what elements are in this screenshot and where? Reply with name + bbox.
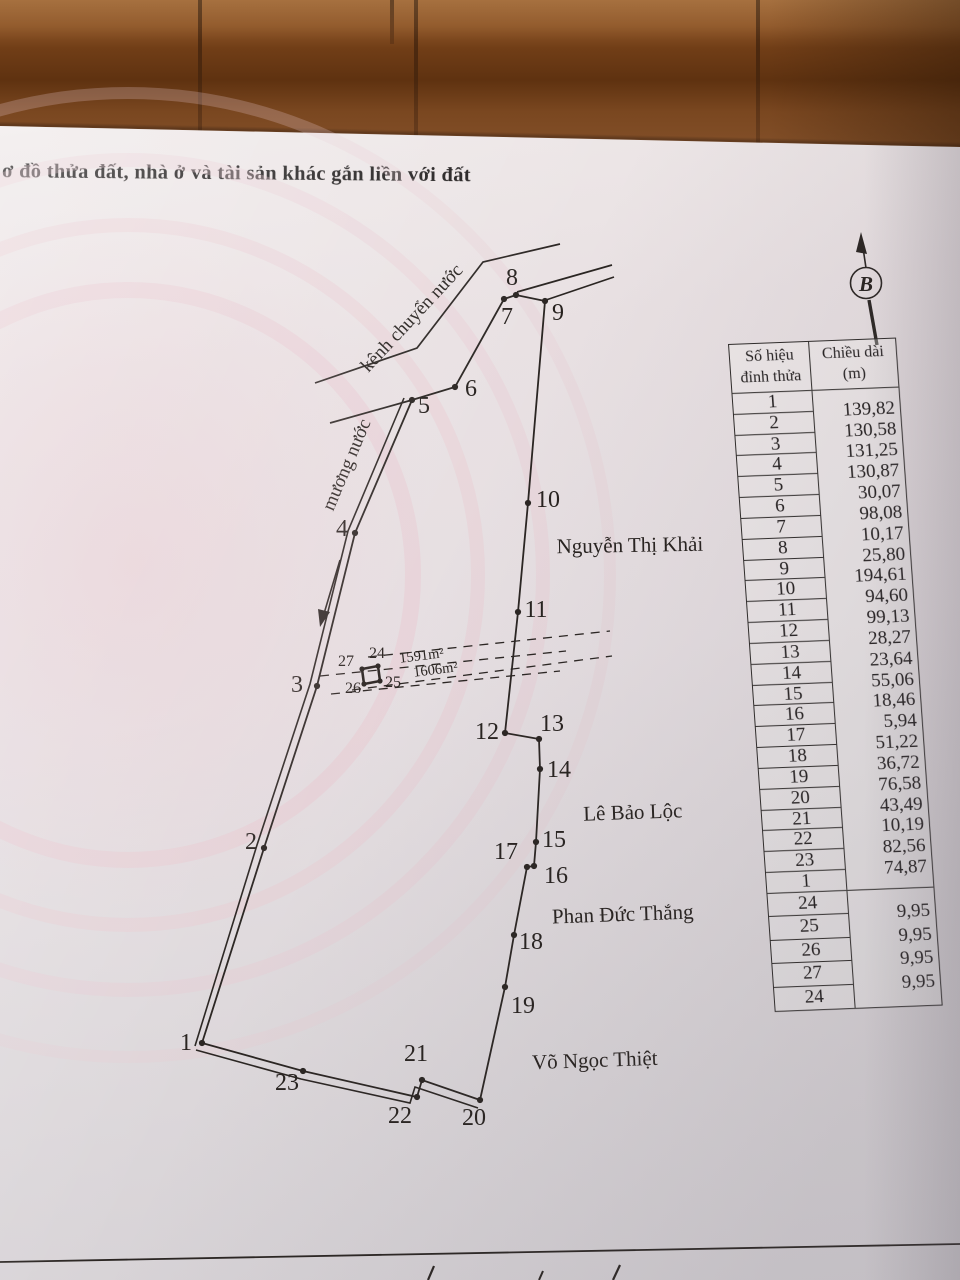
table-header-vertex-col: Số hiệu đỉnh thửa [729, 342, 812, 393]
vertex-dot-5 [409, 397, 415, 403]
vertex-dot-9 [542, 298, 548, 304]
vertex-dot-2 [261, 845, 267, 851]
vertex-dot-1 [199, 1040, 205, 1046]
north-symbol: B [858, 272, 873, 296]
length-value: 9,95 [896, 900, 931, 923]
neighbor-label-south1: Phan Đức Thắng [552, 900, 695, 929]
length-value-column: 9,959,959,959,95 [847, 888, 941, 1008]
page-rule [0, 1244, 960, 1262]
neighbor-label-mid: Lê Bảo Lộc [583, 798, 683, 825]
vertex-label-23: 23 [275, 1070, 299, 1096]
vertex-label-9: 9 [552, 300, 564, 326]
inner-vertex-dot [375, 663, 380, 668]
pen-mark-2 [539, 1271, 543, 1280]
vertex-label-5: 5 [418, 393, 430, 419]
vertex-number-column: 2425262724 [767, 891, 855, 1011]
vertex-dot-10 [525, 500, 531, 506]
vertex-dot-16 [531, 863, 537, 869]
vertex-dot-21 [419, 1077, 425, 1083]
flow-arrow-line [323, 560, 340, 617]
table-section-inner-parcel: 2425262724 9,959,959,959,95 [767, 888, 941, 1011]
ditch-label: mương nước [318, 416, 375, 514]
pen-mark-1 [428, 1266, 434, 1280]
vertex-dot-11 [515, 609, 521, 615]
vertex-dot-18 [511, 932, 517, 938]
vertex-number-cell: 26 [771, 938, 852, 964]
vertex-label-8: 8 [506, 265, 518, 291]
vertex-dot-19 [502, 984, 508, 990]
vertex-label-13: 13 [540, 711, 564, 737]
vertex-number-cell: 24 [767, 891, 848, 917]
vertex-label-12: 12 [475, 719, 499, 745]
vertex-label-19: 19 [511, 993, 535, 1019]
header-line2: (m) [842, 365, 866, 383]
vertex-number-cell: 25 [769, 914, 850, 940]
vertex-label-18: 18 [519, 929, 543, 955]
vertex-label-22: 22 [388, 1103, 412, 1129]
length-value: 9,95 [898, 924, 933, 947]
length-value: 9,95 [899, 947, 934, 970]
vertex-dot-3 [314, 683, 320, 689]
table-header-length-col: Chiều dài (m) [809, 339, 898, 390]
inner-vertex-label-27: 27 [338, 653, 354, 670]
vertex-label-10: 10 [536, 487, 560, 513]
vertex-dot-8 [513, 292, 519, 298]
inner-square [362, 666, 380, 684]
canal-east-line-1 [517, 265, 612, 292]
vertex-dot-15 [533, 839, 539, 845]
north-arrow-head [856, 232, 867, 254]
inner-vertex-dot [359, 666, 364, 671]
photo-of-land-parcel-document: { "title": "ơ đồ thửa đất, nhà ở và tài … [0, 0, 960, 1280]
vertex-number-cell: 24 [774, 984, 855, 1010]
inner-vertex-label-24: 24 [369, 645, 385, 662]
vertex-dot-20 [477, 1097, 483, 1103]
header-line1: Chiều dài [821, 343, 884, 362]
vertex-label-2: 2 [245, 829, 257, 855]
vertex-label-7: 7 [501, 304, 513, 330]
table-header: Số hiệu đỉnh thửa Chiều dài (m) [729, 339, 898, 394]
length-value: 9,95 [901, 970, 936, 993]
vertex-label-16: 16 [544, 863, 568, 889]
vertex-label-15: 15 [542, 827, 566, 853]
boundary-bottom-inner [202, 1043, 480, 1100]
inner-vertex-label-26: 26 [345, 680, 361, 697]
length-value: 74,87 [883, 856, 927, 880]
inner-vertex-dot [377, 678, 382, 683]
vertex-label-4: 4 [336, 516, 348, 542]
vertex-number-cell: 27 [772, 961, 853, 987]
vertex-label-6: 6 [465, 376, 477, 402]
vertex-label-17: 17 [494, 839, 518, 865]
header-line1: Số hiệu [745, 347, 795, 366]
vertex-label-20: 20 [462, 1105, 486, 1131]
vertex-label-1: 1 [180, 1030, 192, 1056]
vertex-label-21: 21 [404, 1041, 428, 1067]
neighbor-label-south2: Võ Ngọc Thiệt [532, 1046, 659, 1074]
vertex-dot-14 [537, 766, 543, 772]
vertex-dot-4 [352, 530, 358, 536]
vertex-dot-12 [502, 730, 508, 736]
vertex-dot-23 [300, 1068, 306, 1074]
vertex-label-11: 11 [524, 597, 547, 623]
vertex-label-14: 14 [547, 757, 571, 783]
flow-arrow-head [318, 609, 330, 627]
neighbor-label-north: Nguyễn Thị Khải [556, 532, 703, 559]
pen-mark-3 [613, 1265, 620, 1280]
vertex-dot-6 [452, 384, 458, 390]
vertex-dot-22 [414, 1094, 420, 1100]
vertex-label-3: 3 [291, 672, 303, 698]
table-section-main: 12345678910111213141516171819202122231 1… [732, 388, 933, 894]
length-value: 5,94 [883, 710, 918, 733]
vertex-dot-7 [501, 296, 507, 302]
inner-vertex-label-25: 25 [385, 674, 401, 691]
vertex-number-cell: 1 [766, 870, 846, 894]
header-line2: đỉnh thửa [740, 367, 802, 386]
inner-vertex-dot [361, 681, 366, 686]
vertex-dot-17 [524, 864, 530, 870]
